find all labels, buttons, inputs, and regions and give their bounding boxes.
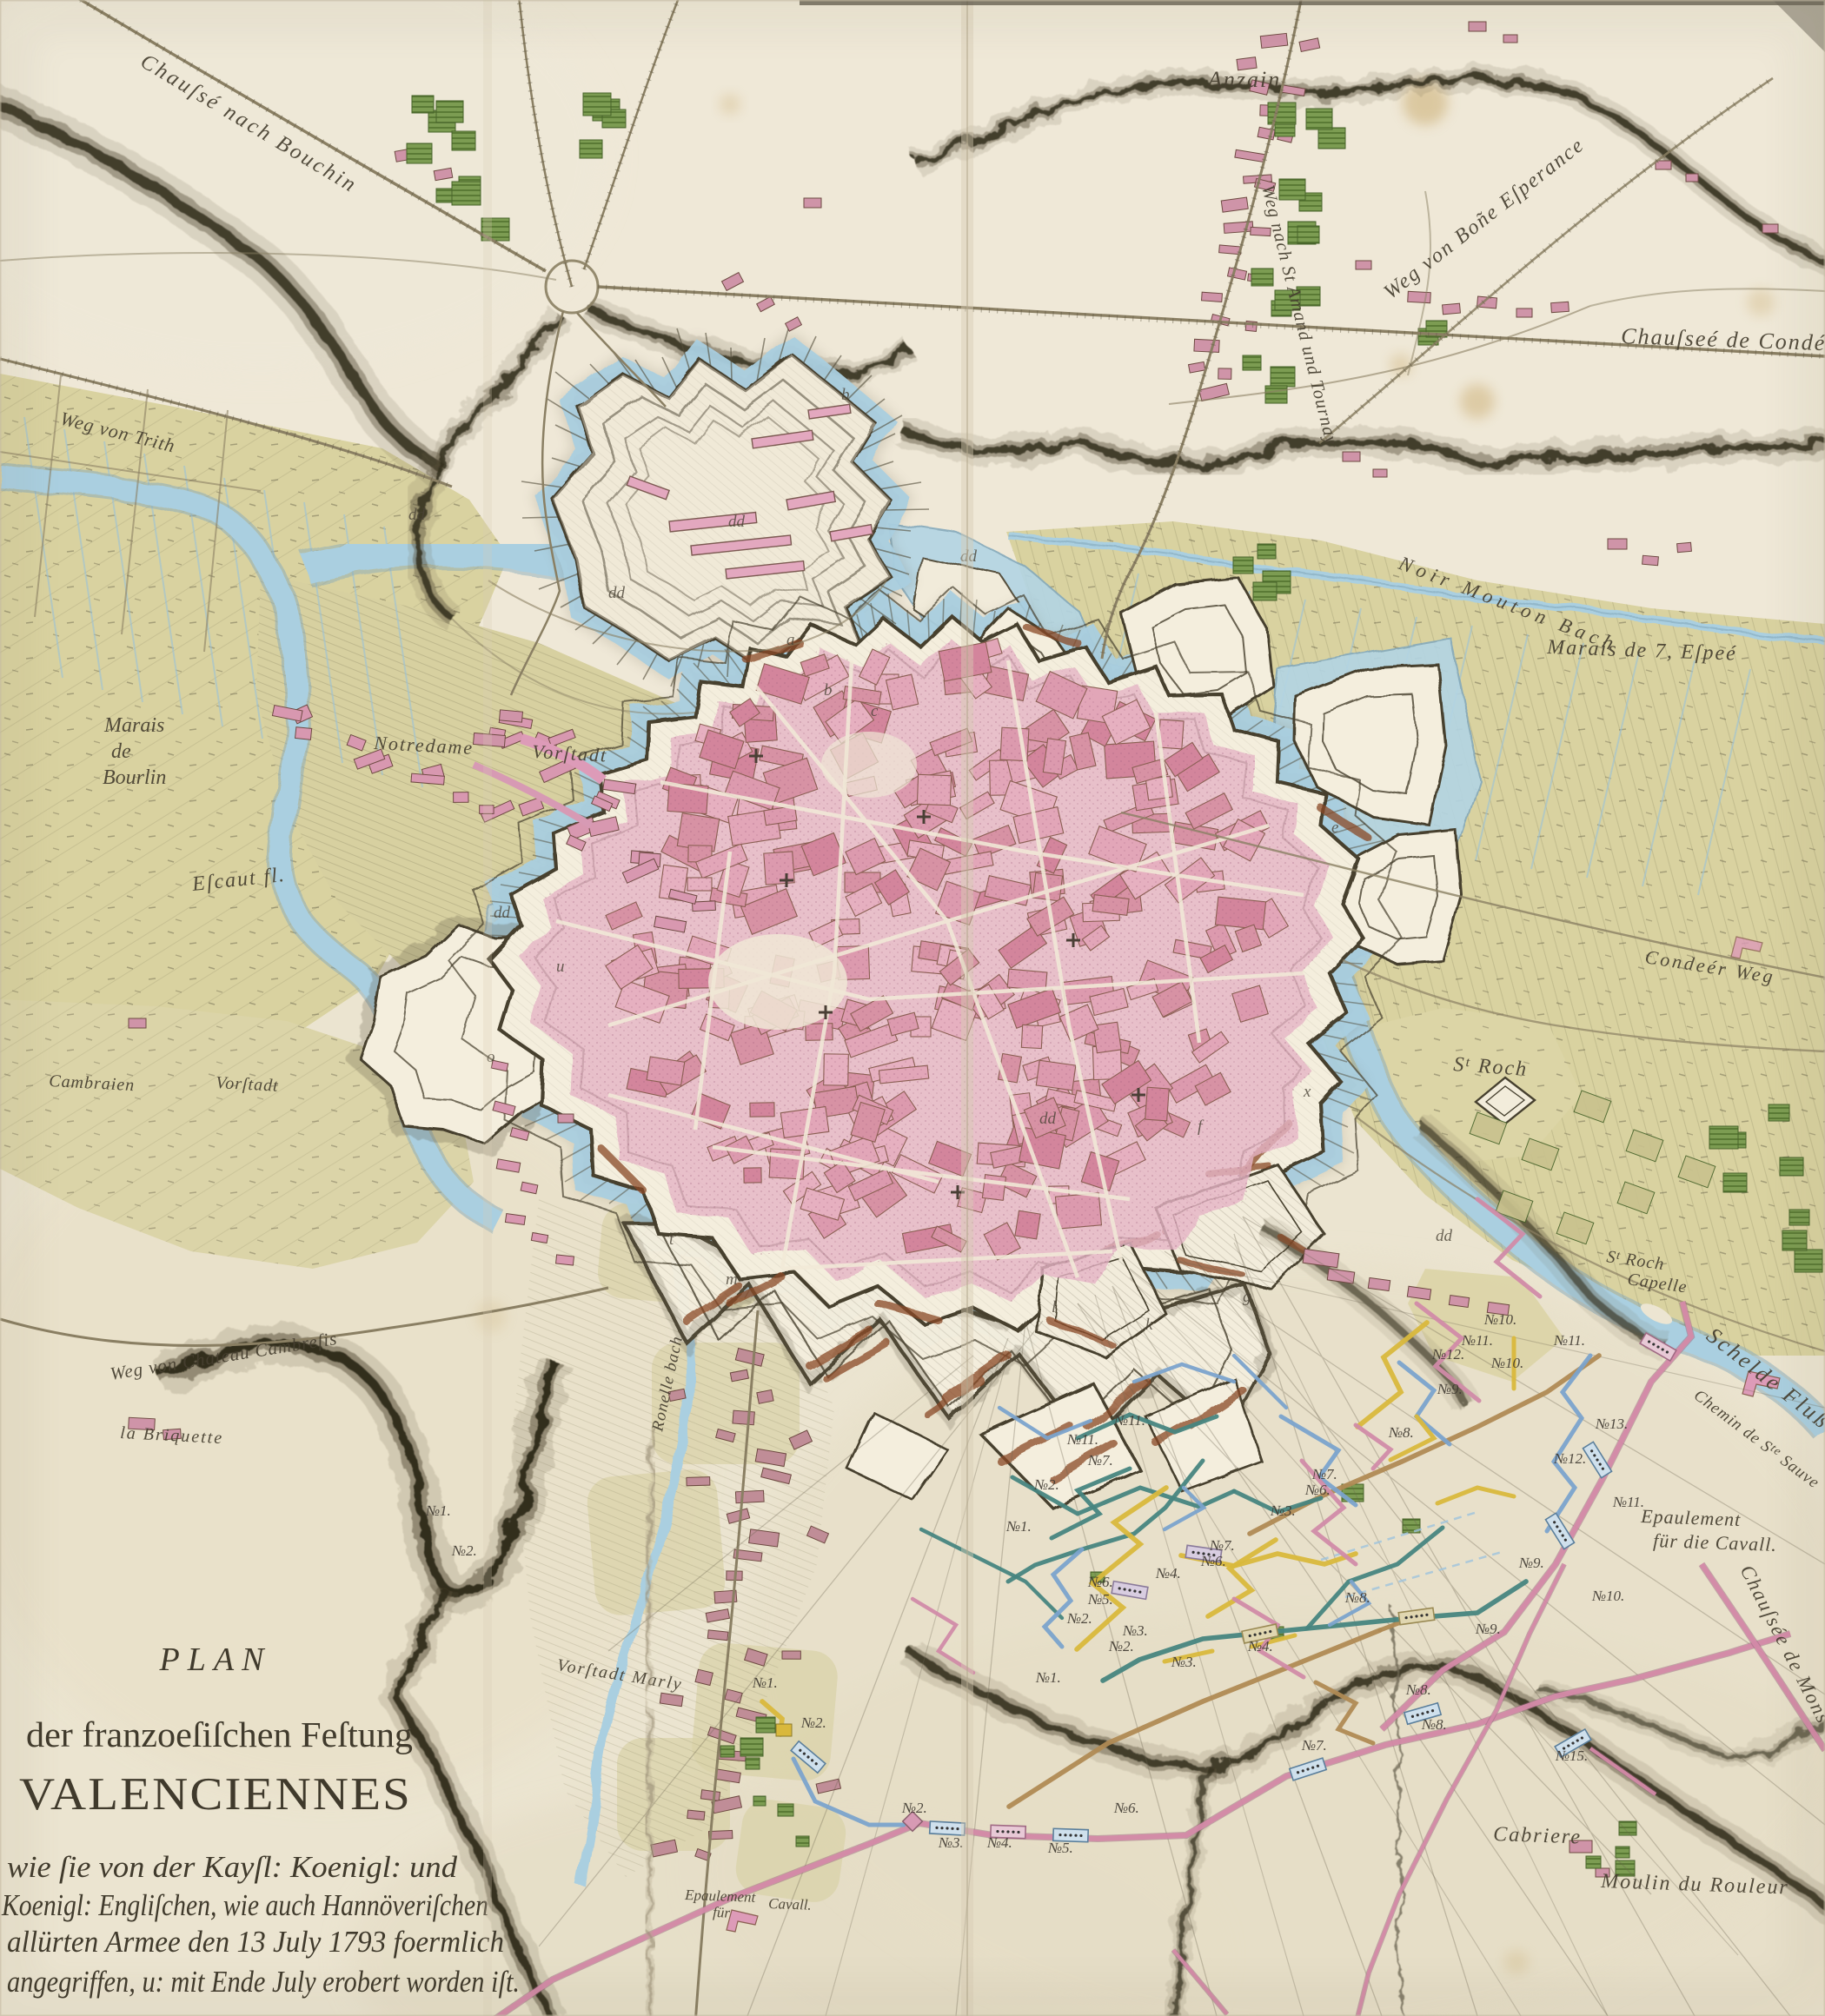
- svg-text:№8.: №8.: [1421, 1716, 1447, 1733]
- svg-text:allürten Armee den 13 July 179: allürten Armee den 13 July 1793 foermlic…: [7, 1925, 504, 1959]
- svg-text:dd: dd: [608, 584, 626, 602]
- svg-text:№8.: №8.: [1388, 1424, 1414, 1441]
- svg-text:№6.: №6.: [1200, 1553, 1226, 1569]
- svg-text:№4.: №4.: [1247, 1638, 1273, 1655]
- svg-text:№10.: №10.: [1591, 1588, 1624, 1604]
- svg-text:Cabriere: Cabriere: [1493, 1823, 1583, 1849]
- svg-text:№11.: №11.: [1461, 1332, 1493, 1349]
- svg-text:Epaulement: Epaulement: [684, 1887, 757, 1906]
- svg-text:e: e: [1331, 819, 1338, 837]
- svg-text:Anzain: Anzain: [1206, 67, 1281, 92]
- svg-text:№7.: №7.: [1209, 1537, 1235, 1554]
- svg-text:№12.: №12.: [1431, 1346, 1464, 1363]
- svg-text:№4.: №4.: [1155, 1565, 1181, 1582]
- svg-text:№3.: №3.: [1270, 1502, 1296, 1519]
- svg-text:Epaulement: Epaulement: [1640, 1505, 1742, 1530]
- svg-text:№2.: №2.: [1108, 1638, 1134, 1655]
- svg-text:№2.: №2.: [1033, 1476, 1059, 1493]
- svg-text:Bourlin: Bourlin: [103, 766, 166, 789]
- svg-text:№9.: №9.: [1518, 1555, 1544, 1571]
- svg-text:c: c: [871, 702, 879, 720]
- svg-text:m: m: [726, 1270, 738, 1289]
- svg-text:der franzoeſiſchen Feſtung: der franzoeſiſchen Feſtung: [26, 1714, 413, 1754]
- svg-text:№2.: №2.: [800, 1714, 826, 1731]
- svg-text:wie ſie von der Kayſl: Koenigl: wie ſie von der Kayſl: Koenigl: und: [7, 1850, 458, 1884]
- svg-text:№3.: №3.: [1171, 1654, 1197, 1670]
- svg-text:№6.: №6.: [1113, 1800, 1139, 1816]
- svg-text:b: b: [824, 681, 833, 700]
- svg-text:a: a: [786, 631, 795, 649]
- svg-text:№1.: №1.: [1005, 1518, 1032, 1535]
- svg-text:№3.: №3.: [938, 1834, 964, 1851]
- svg-text:Vorſtadt: Vorſtadt: [532, 740, 608, 766]
- svg-text:№9.: №9.: [1437, 1381, 1463, 1397]
- svg-text:№15.: №15.: [1555, 1747, 1588, 1764]
- svg-text:k: k: [1145, 1316, 1153, 1334]
- svg-text:dd: dd: [494, 904, 511, 922]
- svg-text:№8.: №8.: [1405, 1681, 1431, 1698]
- svg-text:g: g: [1243, 1288, 1251, 1306]
- svg-text:№6.: №6.: [1087, 1574, 1113, 1590]
- svg-text:Vorſtadt: Vorſtadt: [216, 1073, 280, 1096]
- svg-text:№11.: №11.: [1113, 1412, 1145, 1429]
- svg-text:u: u: [556, 958, 565, 976]
- svg-text:№6.: №6.: [1304, 1482, 1331, 1498]
- svg-text:für: für: [713, 1904, 731, 1921]
- svg-text:№13.: №13.: [1595, 1416, 1628, 1432]
- svg-text:x: x: [1303, 1083, 1311, 1101]
- svg-text:dd: dd: [1436, 1227, 1453, 1245]
- svg-text:№10.: №10.: [1483, 1311, 1516, 1328]
- svg-text:für die Cavall.: für die Cavall.: [1653, 1529, 1778, 1555]
- svg-text:dd: dd: [408, 506, 426, 524]
- svg-text:№7.: №7.: [1087, 1452, 1113, 1469]
- svg-text:№7.: №7.: [1311, 1466, 1337, 1482]
- svg-text:№11.: №11.: [1066, 1431, 1098, 1448]
- svg-text:№11.: №11.: [1553, 1332, 1585, 1349]
- svg-text:t: t: [669, 1230, 674, 1249]
- svg-text:l: l: [1052, 1298, 1056, 1316]
- svg-text:№3.: №3.: [1122, 1622, 1148, 1639]
- svg-text:Cavall.: Cavall.: [768, 1895, 812, 1913]
- svg-text:PLAN: PLAN: [159, 1641, 272, 1678]
- svg-text:№9.: №9.: [1475, 1621, 1501, 1637]
- svg-text:№8.: №8.: [1344, 1589, 1370, 1606]
- svg-text:№2.: №2.: [1066, 1610, 1092, 1627]
- svg-text:№4.: №4.: [986, 1834, 1012, 1851]
- svg-text:№1.: №1.: [752, 1674, 778, 1691]
- svg-text:№12.: №12.: [1553, 1450, 1586, 1467]
- svg-text:Koenigl: Engliſchen, wie auch: Koenigl: Engliſchen, wie auch Hannöveriſ…: [1, 1888, 488, 1922]
- svg-text:dd: dd: [1039, 1110, 1057, 1128]
- svg-text:№10.: №10.: [1490, 1355, 1523, 1371]
- svg-text:№1.: №1.: [425, 1502, 451, 1519]
- svg-text:VALENCIENNES: VALENCIENNES: [19, 1769, 412, 1820]
- svg-text:№7.: №7.: [1301, 1737, 1327, 1754]
- svg-text:№2.: №2.: [901, 1800, 927, 1816]
- svg-text:№5.: №5.: [1087, 1591, 1113, 1608]
- svg-text:Marais: Marais: [103, 714, 164, 737]
- svg-text:dd: dd: [728, 513, 746, 531]
- svg-text:№1.: №1.: [1035, 1669, 1061, 1686]
- svg-text:№11.: №11.: [1612, 1494, 1644, 1510]
- svg-text:№5.: №5.: [1047, 1840, 1073, 1856]
- svg-text:de: de: [111, 740, 131, 763]
- svg-text:№2.: №2.: [451, 1542, 477, 1559]
- svg-text:b: b: [841, 386, 850, 404]
